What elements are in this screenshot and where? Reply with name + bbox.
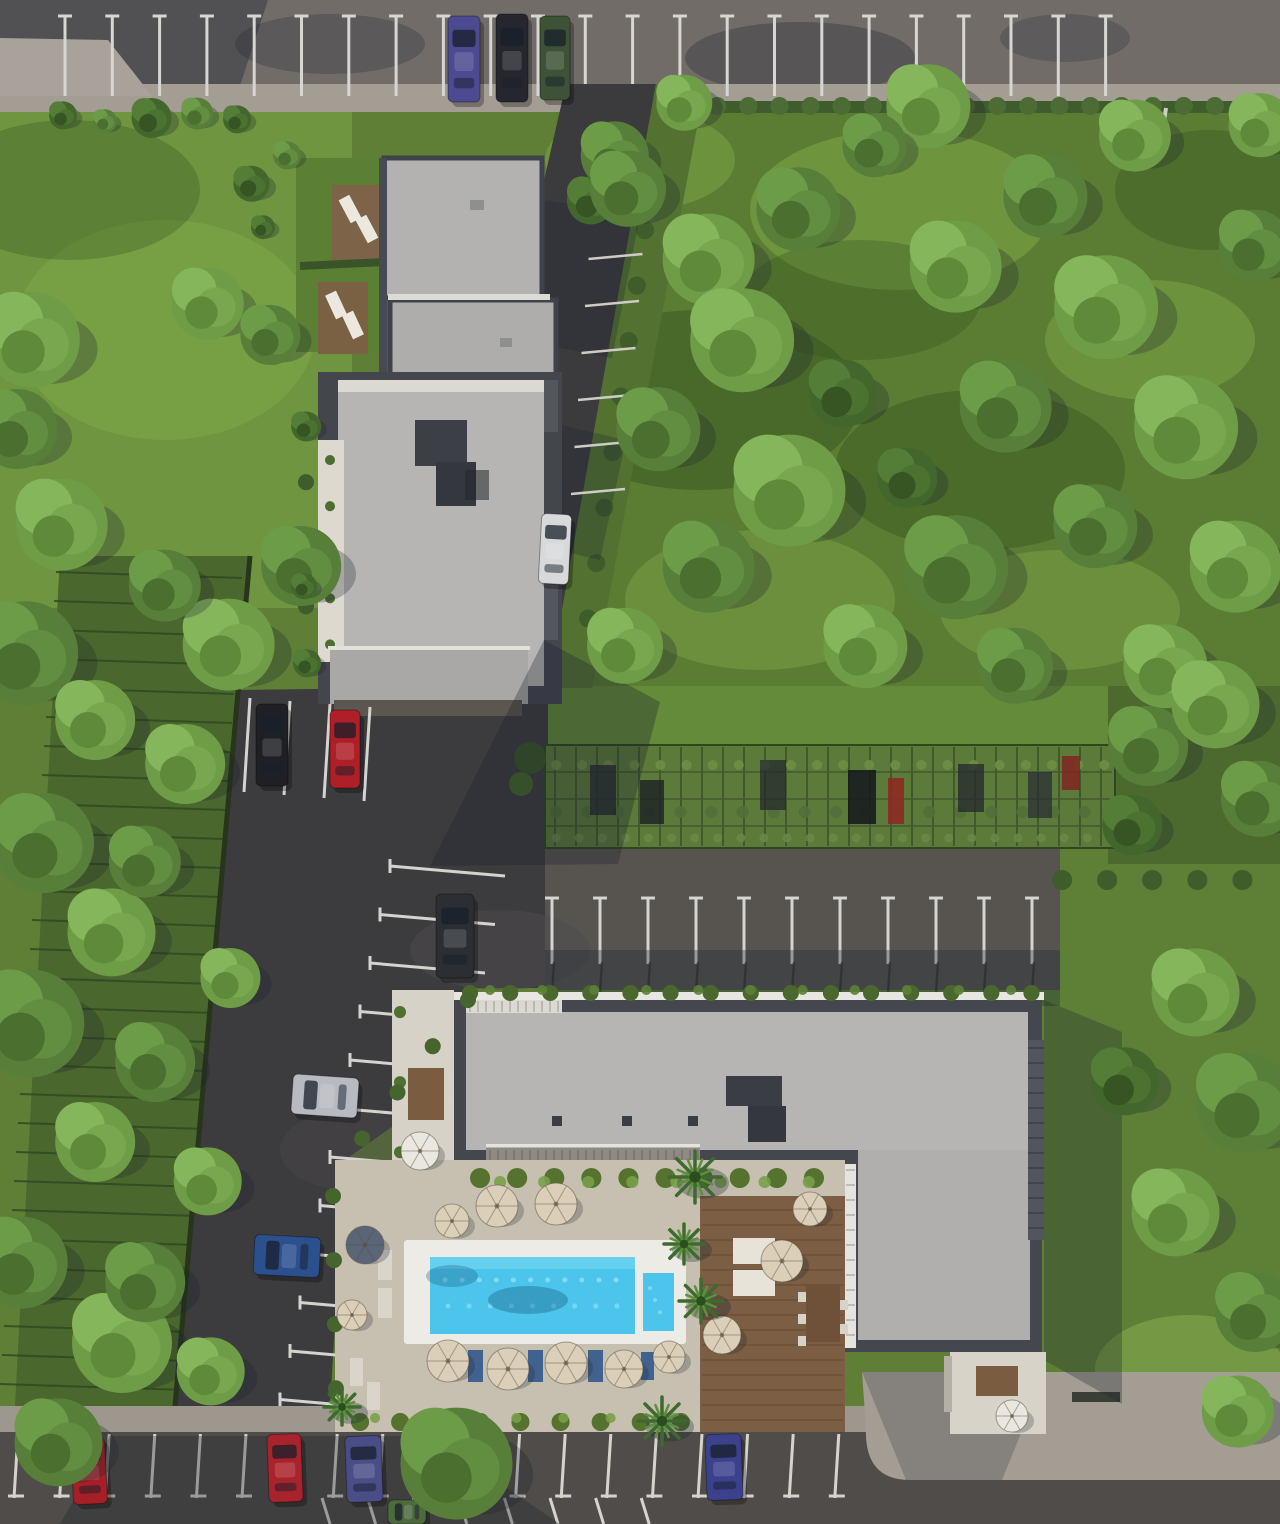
patio-steps	[944, 1356, 952, 1412]
tree-canopy-dark	[2, 330, 45, 373]
tree-canopy-dark	[1215, 1404, 1247, 1436]
car-roof-highlight	[454, 52, 473, 71]
tree-canopy-dark	[1230, 1304, 1266, 1340]
car-top-purple	[448, 16, 484, 107]
tree-canopy-dark	[1232, 238, 1264, 270]
car-north-stall-dark	[436, 894, 478, 983]
tree-canopy-dark	[1235, 791, 1269, 825]
rooftop-unit-1	[415, 420, 467, 466]
tree-canopy-dark	[854, 139, 883, 168]
tree-canopy-dark	[1215, 1093, 1260, 1138]
palm-crown	[689, 1171, 700, 1182]
deck-chair-2	[798, 1314, 806, 1324]
tree-canopy-dark	[754, 479, 804, 529]
roof-vent-2	[500, 338, 512, 347]
tree-canopy-dark	[54, 113, 67, 126]
tree-canopy-dark	[1073, 297, 1120, 344]
car-windshield	[544, 29, 566, 46]
car-windshield	[265, 1241, 280, 1270]
tree-canopy-dark	[298, 661, 311, 674]
palm-crown	[657, 1416, 668, 1427]
car-rear-window	[443, 954, 467, 964]
south-balcony-east	[1028, 1040, 1044, 1240]
tree-canopy-dark	[122, 854, 154, 886]
tree-canopy-dark	[130, 1054, 166, 1090]
car-bottom-violet	[345, 1435, 387, 1507]
car-windshield	[452, 30, 475, 47]
car-windshield	[500, 28, 523, 46]
car-roof-highlight	[275, 1462, 296, 1478]
car-rear-window	[262, 763, 282, 773]
tree-canopy-dark	[889, 472, 916, 499]
tree-canopy-dark	[1103, 1075, 1134, 1106]
townhouse-deck-2	[318, 282, 368, 354]
tree-canopy-dark	[977, 397, 1018, 438]
pergola-car-2	[640, 780, 664, 824]
south-slat-strip	[466, 1000, 562, 1013]
tree-canopy-dark	[186, 1175, 217, 1206]
tree-canopy-dark	[1112, 128, 1144, 160]
umbrella-pole	[350, 1313, 354, 1317]
north-south-roof	[330, 650, 528, 704]
road-shadow-blob-2	[685, 22, 915, 94]
car-roof-highlight	[502, 51, 521, 70]
car-windshield	[260, 717, 283, 733]
townhouse-deck-1	[332, 185, 382, 261]
palm-crown	[338, 1403, 346, 1411]
tree-canopy-dark	[200, 635, 241, 676]
car-rear-window	[79, 1485, 101, 1494]
tree-canopy-dark	[632, 421, 670, 459]
umbrella-pole	[720, 1333, 725, 1338]
tree-canopy-dark	[1240, 119, 1269, 148]
tree-canopy-dark	[187, 110, 201, 124]
car-windshield	[334, 722, 356, 738]
car-windshield	[441, 907, 468, 924]
road-shadow-blob-3	[1000, 14, 1130, 62]
tree-canopy-dark	[1139, 658, 1177, 696]
car-roof-highlight	[713, 1461, 735, 1476]
car-rear-window	[713, 1481, 736, 1490]
car-rear-window	[300, 1244, 309, 1270]
car-rear-window	[544, 564, 564, 573]
roof-vent-1	[470, 200, 484, 210]
tree-canopy-dark	[923, 557, 970, 604]
tree-canopy-dark	[709, 330, 756, 377]
tree-canopy-dark	[33, 515, 74, 556]
terrace-chair-3	[447, 1074, 454, 1084]
car-roof-highlight	[353, 1463, 375, 1478]
umbrella-pole	[494, 1203, 499, 1208]
tree-canopy-dark	[252, 329, 279, 356]
south-vent-c	[688, 1116, 698, 1126]
car-windshield	[272, 1444, 297, 1458]
south-roof-wing	[858, 1150, 1030, 1340]
car-roof-highlight	[319, 1084, 335, 1109]
north-south-deck	[334, 700, 522, 716]
north-south-rail	[328, 646, 530, 650]
tree-canopy-dark	[839, 638, 877, 676]
pergola-car-4	[848, 770, 876, 824]
tree-canopy-dark	[296, 584, 308, 596]
tree-canopy-dark	[278, 153, 291, 166]
north-building-band	[338, 380, 544, 392]
pergola-car-red-2	[1062, 756, 1080, 790]
car-roof-highlight	[262, 738, 281, 756]
car-white	[538, 513, 576, 590]
car-roof-highlight	[404, 1505, 412, 1519]
tree-canopy-dark	[927, 257, 968, 298]
umbrella-pole	[808, 1207, 812, 1211]
tree-canopy-dark	[228, 117, 241, 130]
car-rear-window	[275, 1483, 297, 1492]
garden-hedge-divider	[300, 262, 384, 266]
tree-canopy-dark	[84, 924, 124, 964]
patio-table	[976, 1366, 1018, 1396]
deck-chair-4	[840, 1300, 848, 1310]
south-balcony-rail	[486, 1144, 700, 1147]
tree-canopy-dark	[601, 638, 635, 672]
umbrella-pole	[563, 1360, 568, 1365]
car-roof-highlight	[546, 51, 564, 69]
car-bottom-red-2	[267, 1433, 308, 1507]
south-rooftop-unit-1	[726, 1076, 782, 1106]
terrace-table	[408, 1068, 444, 1120]
north-balcony-e1	[544, 380, 558, 432]
lounger-pool-3	[350, 1358, 363, 1386]
lounger-pool-4	[367, 1382, 380, 1410]
tree-canopy-dark	[70, 712, 106, 748]
tree-canopy-dark	[139, 114, 157, 132]
tree-canopy-dark	[1114, 819, 1141, 846]
car-roof-highlight	[336, 743, 354, 760]
tree-canopy-dark	[772, 201, 810, 239]
palm-shadow-on-pool-2	[426, 1265, 478, 1287]
car-windshield	[350, 1446, 376, 1460]
car-windshield	[395, 1503, 403, 1520]
site-plan-svg	[0, 0, 1280, 1524]
pergola-car-6	[1028, 772, 1052, 818]
tree-canopy-dark	[13, 833, 58, 878]
terrace-chair-4	[447, 1096, 454, 1106]
tree	[1190, 521, 1280, 613]
car-roof-highlight	[444, 929, 467, 947]
pergola-car-3	[760, 760, 786, 810]
pergola-car-red	[888, 778, 904, 824]
tree-canopy-dark	[1207, 557, 1248, 598]
tree-canopy-dark	[240, 180, 256, 196]
tree-canopy-dark	[185, 296, 217, 328]
tree-canopy-dark	[297, 424, 311, 438]
south-rooftop-unit-2	[748, 1106, 786, 1142]
car-bend-black	[256, 704, 292, 791]
umbrella-pole	[450, 1219, 454, 1223]
tree-canopy-dark	[120, 1274, 156, 1310]
tree-canopy-dark	[1019, 188, 1057, 226]
tree-canopy-dark	[31, 1434, 71, 1474]
rooftop-unit-shadow	[465, 470, 489, 500]
car-top-black	[496, 14, 532, 107]
umbrella-pole	[622, 1367, 627, 1372]
tree-canopy-dark	[1069, 518, 1107, 556]
tree-canopy-dark	[97, 119, 108, 130]
umbrella-pole	[418, 1149, 423, 1154]
car-roof-highlight	[545, 543, 564, 559]
tree-canopy-dark	[1148, 1204, 1188, 1244]
tree-canopy-dark	[1153, 417, 1200, 464]
tree-canopy-dark	[160, 756, 196, 792]
palm-crown	[696, 1296, 706, 1306]
car-silver	[290, 1074, 363, 1124]
deck-chair-1	[798, 1292, 806, 1302]
tree-canopy-dark	[255, 225, 266, 236]
tree-canopy-dark	[212, 972, 239, 999]
pergola-car-5	[958, 764, 984, 812]
tree-canopy-dark	[680, 250, 721, 291]
umbrella-pole	[445, 1358, 450, 1363]
site-plan-rendering	[0, 0, 1280, 1524]
car-rear-window	[415, 1504, 420, 1519]
deck-chair-3	[798, 1336, 806, 1346]
umbrella-pole	[363, 1243, 368, 1248]
tree-canopy-dark	[1123, 738, 1159, 774]
tree-canopy-dark	[189, 1365, 220, 1396]
south-vent-a	[552, 1116, 562, 1126]
car-rear-window	[502, 77, 522, 88]
car-blue-lot	[253, 1234, 325, 1283]
tree-canopy-dark	[991, 658, 1025, 692]
car-rear-window	[353, 1483, 376, 1492]
umbrella-pole	[505, 1366, 510, 1371]
car-rear-window	[454, 78, 474, 88]
tree-canopy-dark	[1188, 696, 1228, 736]
car-bottom-blue	[705, 1433, 747, 1505]
umbrella-pole	[779, 1258, 784, 1263]
car-rear-window	[545, 76, 564, 86]
car-windshield	[303, 1080, 318, 1110]
car-roof-highlight	[281, 1244, 297, 1269]
car-bend-red	[330, 710, 364, 793]
tree-canopy-dark	[604, 181, 638, 215]
lounger-pool-2	[378, 1288, 392, 1318]
tree-canopy-dark	[421, 1452, 471, 1502]
car-windshield	[710, 1444, 736, 1458]
umbrella-pole	[1010, 1414, 1014, 1418]
townhouse-roof-1	[384, 158, 542, 298]
tree-canopy-dark	[1168, 984, 1208, 1024]
car-top-green	[540, 16, 574, 105]
tree-canopy-dark	[667, 97, 692, 122]
car-windshield	[545, 525, 567, 540]
tree-canopy-dark	[680, 557, 721, 598]
tree-canopy-dark	[902, 98, 940, 136]
umbrella-pole	[667, 1355, 671, 1359]
deck-dining-table	[806, 1284, 840, 1342]
umbrella-pole	[553, 1201, 558, 1206]
car-rear-window	[335, 766, 354, 775]
palm-shadow-on-pool-1	[488, 1286, 568, 1314]
palm-crown	[680, 1240, 689, 1249]
south-vent-b	[622, 1116, 632, 1126]
tree-canopy-dark	[142, 578, 174, 610]
roof-divider-1	[388, 294, 550, 300]
deck-chair-5	[840, 1324, 848, 1334]
tree-canopy-dark	[821, 387, 852, 418]
tree-canopy-dark	[91, 1333, 136, 1378]
tree-canopy-dark	[70, 1134, 106, 1170]
pool-spa	[643, 1273, 674, 1331]
